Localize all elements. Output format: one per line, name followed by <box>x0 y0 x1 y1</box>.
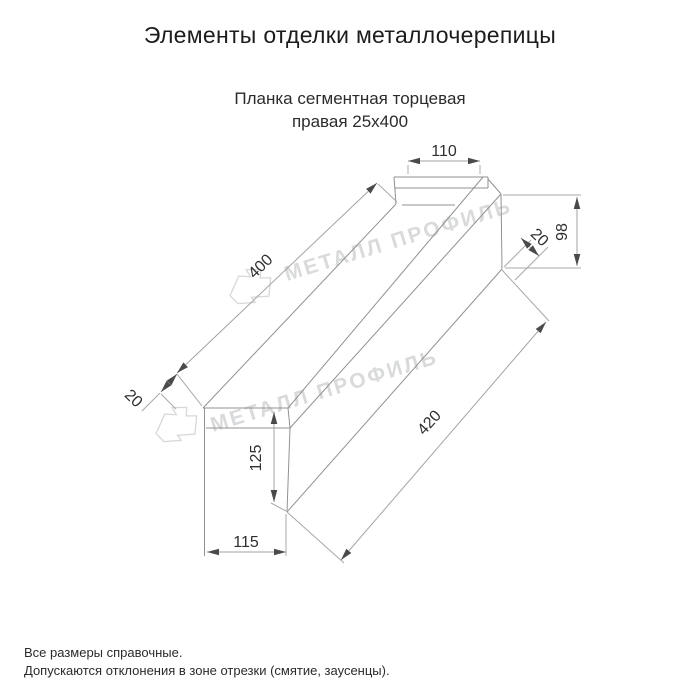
extension-lines <box>142 165 581 563</box>
technical-drawing: МЕТАЛЛ ПРОФИЛЬ МЕТАЛЛ ПРОФИЛЬ <box>0 0 700 700</box>
ext-20l-lower <box>161 394 176 409</box>
dim-label-top-length: 400 <box>245 251 276 282</box>
footnote-1: Все размеры справочные. <box>24 644 390 662</box>
dim-line-420 <box>341 322 546 560</box>
metall-profil-logo-icon <box>150 402 202 447</box>
far-corner-connector <box>488 179 501 194</box>
dim-label-bottom-length: 420 <box>414 407 445 438</box>
footnotes: Все размеры справочные. Допускаются откл… <box>24 644 390 680</box>
watermark-upper: МЕТАЛЛ ПРОФИЛЬ <box>224 195 515 309</box>
ext-400-far <box>378 184 397 202</box>
ext-125-bottom <box>271 503 286 511</box>
footnote-2: Допускаются отклонения в зоне отрезки (с… <box>24 662 390 680</box>
ext-20l-upper <box>177 374 202 406</box>
dim-label-top-flange-width: 110 <box>431 143 457 160</box>
dim-label-face-height: 125 <box>248 445 265 472</box>
page: Элементы отделки металлочерепицы Планка … <box>0 0 700 700</box>
ext-420-far <box>502 270 549 321</box>
watermark-text: МЕТАЛЛ ПРОФИЛЬ <box>208 346 441 437</box>
dim-label-left-hem: 20 <box>121 386 146 411</box>
dim-line-20-left <box>161 374 177 392</box>
ext-20r-inner <box>515 247 548 280</box>
dim-line-400 <box>177 183 377 373</box>
dim-20l-tail <box>142 393 160 411</box>
dim-label-end-height: 98 <box>554 223 571 241</box>
dimension-lines <box>161 161 577 560</box>
dim-label-end-hem: 20 <box>527 225 552 250</box>
dim-label-bottom-flange-width: 115 <box>233 534 259 551</box>
near-face-edge <box>287 428 290 512</box>
ext-420-near <box>287 512 344 563</box>
